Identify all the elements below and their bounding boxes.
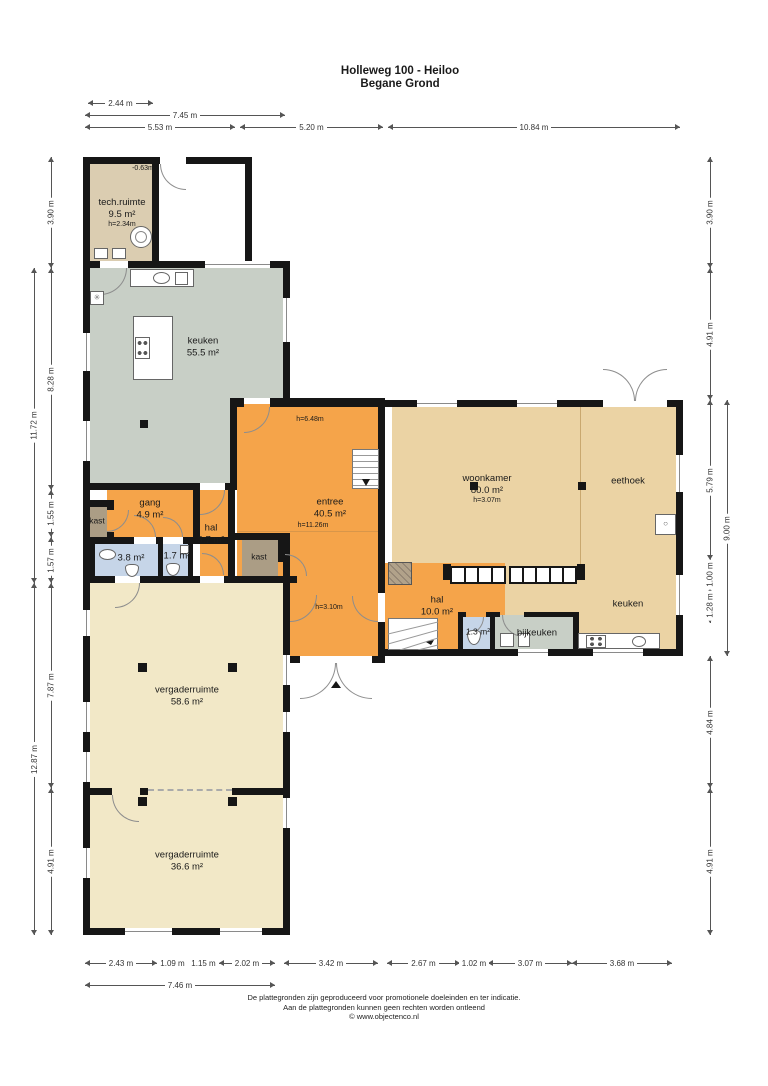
dim-right: 5.79 m (703, 400, 717, 560)
dim-bottom: 3.42 m (284, 956, 378, 970)
dim-bottom: 3.07 m (488, 956, 572, 970)
window (676, 455, 683, 492)
dim-left: 8.28 m (44, 268, 58, 490)
cabinet-row (509, 566, 577, 584)
fridge-icon: ✳ (90, 291, 104, 305)
sideboard (388, 562, 412, 585)
label-badkamer: 3.8 m² (118, 552, 145, 564)
cabinet-row (450, 566, 506, 584)
window (83, 752, 90, 782)
label-h310: h=3.10m (315, 604, 342, 612)
label-kast-rechts: kast (251, 551, 267, 563)
entry-door-right (336, 663, 372, 699)
page-title: Holleweg 100 - Heiloo Begane Grond (341, 65, 459, 91)
dim-right: 4.91 m (703, 268, 717, 400)
winder-stairs-icon (388, 618, 438, 650)
window (283, 655, 290, 685)
dim-bottom: 3.68 m (572, 956, 672, 970)
label-level-offset: -0.63m (132, 165, 154, 173)
window (518, 649, 548, 656)
dim-right: 4.84 m (703, 656, 717, 788)
dim-left: 1.55 m (44, 490, 58, 537)
label-vergaderruimte2: vergaderruimte 36.6 m² (155, 850, 219, 873)
fireplace-icon: ○ (655, 514, 676, 535)
dim-right: 9.00 m (720, 400, 734, 656)
room-keuken (90, 398, 230, 483)
washing-machine-icon (130, 226, 152, 248)
dim-left: 3.90 m (44, 157, 58, 268)
floorplan-page: Holleweg 100 - Heiloo Begane Grond (0, 0, 768, 1086)
window (83, 702, 90, 732)
window (83, 610, 90, 636)
appliance-icon (94, 248, 108, 259)
label-vergaderruimte1: vergaderruimte 58.6 m² (155, 685, 219, 708)
window (83, 848, 90, 878)
dim-bottom: 1.02 m (460, 956, 488, 970)
dim-top: 5.20 m (240, 120, 383, 134)
room-vergaderruimte1 (90, 583, 283, 928)
window (676, 575, 683, 615)
label-keuken-rechts: keuken (613, 598, 644, 610)
dim-left: 11.72 m (27, 268, 41, 583)
window (283, 298, 290, 342)
label-woonkamer: woonkamer 80.0 m² h=3.07m (462, 473, 511, 505)
stove-icon (586, 635, 606, 648)
door-arc (160, 164, 186, 190)
label-h648: h=6.48m (296, 416, 323, 424)
label-kast-links: kast (89, 515, 105, 527)
room-entree (290, 583, 378, 656)
room-keuken (90, 268, 283, 398)
window (125, 928, 172, 935)
open-connection-dashed (148, 789, 232, 791)
stove-icon (135, 337, 150, 359)
label-hal: hal 3.7 m² (198, 523, 225, 546)
window (283, 712, 290, 732)
dim-left: 12.87 m (27, 583, 41, 935)
dim-left: 7.87 m (44, 583, 58, 788)
window (417, 400, 457, 407)
label-techruimte: tech.ruimte 9.5 m² h=2.34m (99, 197, 146, 229)
sink-icon (99, 549, 116, 560)
dim-left: 1.57 m (44, 537, 58, 583)
disclaimer-line2: Aan de plattegronden kunnen geen rechten… (247, 1002, 520, 1012)
window (593, 649, 643, 656)
sink-icon (632, 636, 646, 647)
title-floor: Begane Grond (341, 78, 459, 91)
stairs-direction-arrow (362, 479, 370, 486)
dim-right: 1.28 m (703, 588, 717, 623)
dim-bottom: 1.09 m (157, 956, 188, 970)
label-bijkeuken: bijkeuken (517, 627, 557, 639)
label-wc: 1.7 m² (164, 550, 191, 562)
entree-ceiling-line (237, 531, 378, 532)
label-keuken: keuken 55.5 m² (187, 336, 219, 359)
sink-icon (153, 272, 170, 284)
dim-bottom: 2.67 m (387, 956, 460, 970)
label-wc2: 1.3 m² (466, 626, 490, 638)
disclaimer-line1: De plattegronden zijn geproduceerd voor … (247, 993, 520, 1003)
dim-top: 10.84 m (388, 120, 680, 134)
dim-bottom: 2.02 m (219, 956, 275, 970)
footer-disclaimer: De plattegronden zijn geproduceerd voor … (247, 993, 520, 1022)
french-door-left (603, 369, 635, 401)
label-entree: entree 40.5 m² (314, 497, 346, 520)
dim-bottom: 7.46 m (85, 978, 275, 992)
label-eethoek: eethoek (611, 475, 645, 487)
dim-top: 5.53 m (85, 120, 235, 134)
window (283, 798, 290, 828)
dim-bottom: 2.43 m (85, 956, 157, 970)
appliance-icon (112, 248, 126, 259)
window (517, 400, 557, 407)
label-h1126: h=11.26m (298, 522, 329, 530)
dim-right: 1.00 m (703, 560, 717, 588)
label-gang: gang 4.9 m² (137, 498, 164, 521)
appliance-icon (500, 633, 514, 647)
entry-marker (331, 681, 341, 688)
window (205, 261, 270, 268)
window (220, 928, 262, 935)
dim-right: 4.91 m (703, 788, 717, 935)
dim-left: 4.91 m (44, 788, 58, 935)
window (83, 333, 90, 371)
copyright-line: © www.objectenco.nl (247, 1012, 520, 1022)
title-address: Holleweg 100 - Heiloo (341, 65, 459, 78)
label-hal2: hal 10.0 m² (421, 595, 453, 618)
window (83, 421, 90, 461)
french-door-right (635, 369, 667, 401)
dim-bottom: 1.15 m (188, 956, 219, 970)
dim-right: 3.90 m (703, 157, 717, 268)
sink-icon (175, 272, 188, 285)
